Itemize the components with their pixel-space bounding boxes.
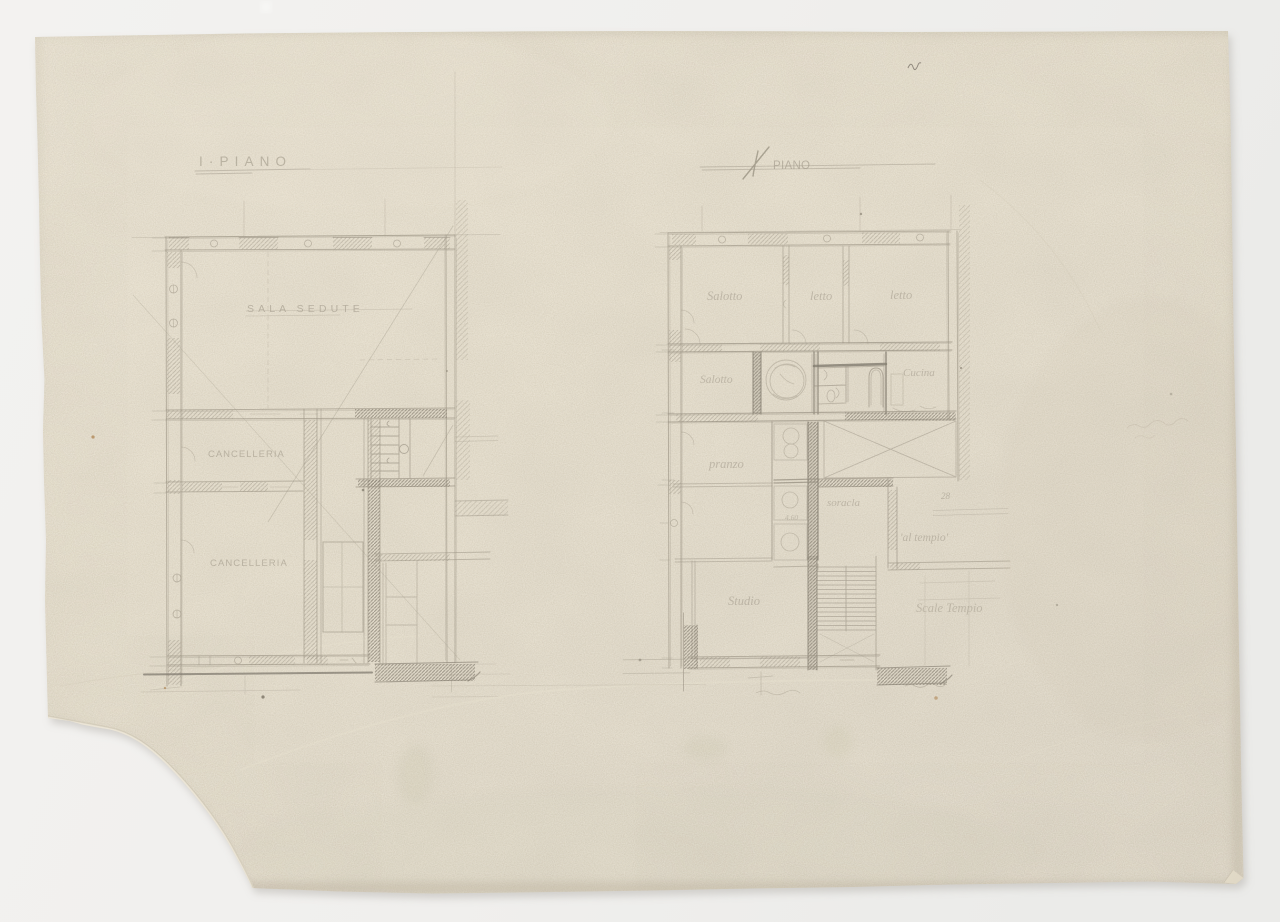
svg-text:Scale Tempio: Scale Tempio [916,601,983,615]
svg-text:CANCELLERIA: CANCELLERIA [210,558,288,569]
svg-text:Studio: Studio [728,594,760,608]
svg-text:28: 28 [941,491,951,501]
svg-text:Salotto: Salotto [707,289,742,303]
svg-text:4.60: 4.60 [785,513,798,522]
svg-text:'al tempio': 'al tempio' [900,532,949,544]
svg-text:soracla: soracla [827,497,861,509]
svg-text:Cucina: Cucina [903,367,935,379]
svg-text:SALA SEDUTE: SALA SEDUTE [247,303,362,315]
svg-text:letto: letto [890,288,912,302]
svg-text:Salotto: Salotto [700,374,733,386]
svg-text:CANCELLERIA: CANCELLERIA [208,449,285,460]
svg-text:pranzo: pranzo [708,457,744,471]
svg-text:letto: letto [810,289,832,303]
